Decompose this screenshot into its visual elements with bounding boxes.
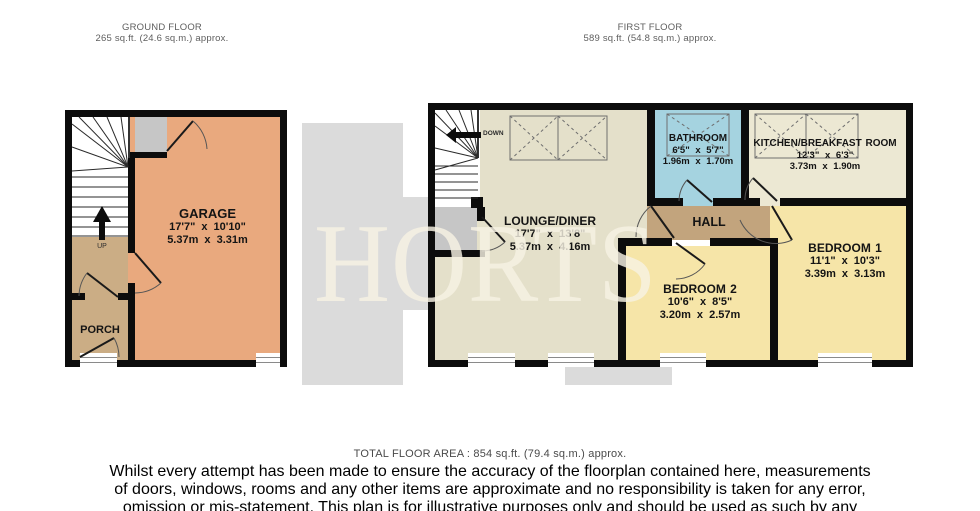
- down-label: DOWN: [483, 130, 504, 137]
- floorplan-page: GROUND FLOOR 265 sq.ft. (24.6 sq.m.) app…: [0, 0, 980, 511]
- bathroom-bottom-wall-right: [713, 198, 749, 206]
- ground-floor-area: 265 sq.ft. (24.6 sq.m.) approx.: [62, 33, 262, 44]
- porch-wall-stub-left: [72, 293, 85, 300]
- stairs-garage-divider-wall: [128, 152, 135, 253]
- bedroom1-room: [770, 206, 906, 360]
- kitchen-name: KITCHEN/BREAKFAST ROOM: [742, 138, 908, 150]
- ground-floor-header: GROUND FLOOR 265 sq.ft. (24.6 sq.m.) app…: [62, 22, 262, 44]
- kitchen-label: KITCHEN/BREAKFAST ROOM 12'3" x 6'3" 3.73…: [742, 138, 908, 173]
- stairs-wall-stub: [471, 197, 483, 208]
- bedroom2-dims-m: 3.20m x 2.57m: [632, 309, 768, 322]
- stairs-edge-line-first: [477, 110, 479, 158]
- front-door-opening: [80, 353, 117, 367]
- lounge-window-symbol-1: [468, 353, 515, 367]
- lounge-name: LOUNGE/DINER: [460, 214, 640, 228]
- lounge-dims-ft: 17'7" x 13'8": [460, 228, 640, 241]
- bedroom2-left-wall: [618, 246, 626, 360]
- hall-name: HALL: [676, 215, 742, 229]
- garage-label: GARAGE 17'7" x 10'10" 5.37m x 3.31m: [135, 206, 280, 247]
- bedroom1-name: BEDROOM 1: [777, 241, 913, 255]
- bedroom1-label: BEDROOM 1 11'1" x 10'3" 3.39m x 3.13m: [777, 241, 913, 281]
- disclaimer-line: Whilst every attempt has been made to en…: [0, 463, 980, 481]
- garage-storage-cupboard: [135, 117, 167, 152]
- lounge-dims-m: 5.37m x 4.16m: [460, 241, 640, 254]
- storage-wall: [135, 152, 167, 158]
- bedroom2-name: BEDROOM 2: [632, 282, 768, 296]
- porch-name: PORCH: [72, 323, 128, 337]
- total-floor-area-text: TOTAL FLOOR AREA : 854 sq.ft. (79.4 sq.m…: [0, 448, 980, 460]
- first-floor-stairs-area: [435, 110, 480, 210]
- total-floor-area: TOTAL FLOOR AREA : 854 sq.ft. (79.4 sq.m…: [0, 448, 980, 460]
- bathroom-bottom-wall-left: [647, 198, 683, 206]
- bathroom-dims-m: 1.96m x 1.70m: [650, 156, 746, 168]
- porch-label: PORCH: [72, 323, 128, 337]
- first-floor-title: FIRST FLOOR: [550, 22, 750, 33]
- first-floor-area: 589 sq.ft. (54.8 sq.m.) approx.: [550, 33, 750, 44]
- kitchen-dims-ft: 12'3" x 6'3": [742, 150, 908, 162]
- ground-floor-title: GROUND FLOOR: [62, 22, 262, 33]
- stairs-edge-line: [128, 117, 130, 158]
- up-label: UP: [88, 243, 116, 250]
- porch-wall-stub-right: [118, 293, 135, 300]
- lounge-window-symbol-2: [548, 353, 594, 367]
- bedroom1-window-symbol: [818, 353, 872, 367]
- bedroom1-dims-m: 3.39m x 3.13m: [777, 268, 913, 281]
- watermark-bar-left: [302, 123, 403, 385]
- bathroom-dims-ft: 6'5" x 5'7": [650, 145, 746, 157]
- garage-dims-ft: 17'7" x 10'10": [135, 221, 280, 234]
- bedroom2-dims-ft: 10'6" x 8'5": [632, 296, 768, 309]
- bedroom2-top-wall-right: [710, 238, 778, 246]
- disclaimer-line: omission or mis-statement. This plan is …: [0, 499, 980, 511]
- hall-label: HALL: [676, 215, 742, 229]
- bathroom-name: BATHROOM: [650, 133, 746, 145]
- bedroom2-label: BEDROOM 2 10'6" x 8'5" 3.20m x 2.57m: [632, 282, 768, 322]
- lounge-label: LOUNGE/DINER 17'7" x 13'8" 5.37m x 4.16m: [460, 214, 640, 254]
- kitchen-dims-m: 3.73m x 1.90m: [742, 161, 908, 173]
- bathroom-label: BATHROOM 6'5" x 5'7" 1.96m x 1.70m: [650, 133, 746, 168]
- bedroom1-dims-ft: 11'1" x 10'3": [777, 255, 913, 268]
- garage-dims-m: 5.37m x 3.31m: [135, 234, 280, 247]
- garage-name: GARAGE: [135, 206, 280, 221]
- kitchen-bedroom1-wall: [780, 198, 906, 206]
- bedroom2-window-symbol: [660, 353, 706, 367]
- disclaimer: Whilst every attempt has been made to en…: [0, 463, 980, 511]
- kitchen-bottom-wall-left: [749, 198, 760, 206]
- disclaimer-line: of doors, windows, rooms and any other i…: [0, 481, 980, 499]
- garage-window-symbol: [256, 353, 280, 367]
- first-floor-header: FIRST FLOOR 589 sq.ft. (54.8 sq.m.) appr…: [550, 22, 750, 44]
